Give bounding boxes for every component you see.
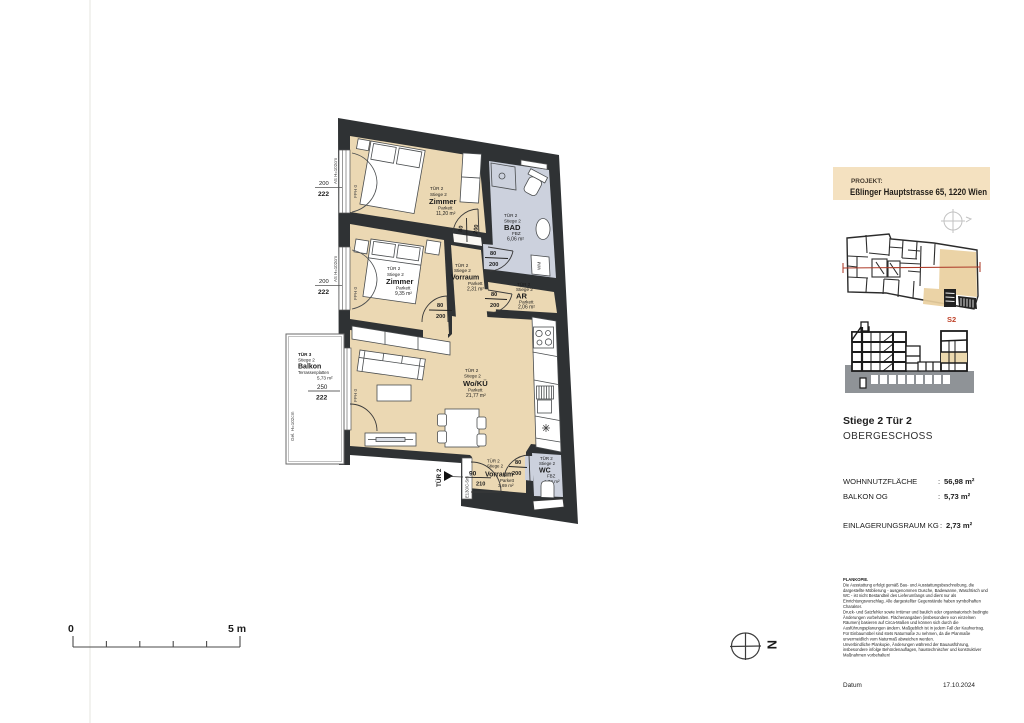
- svg-text:TÜR 2: TÜR 2: [430, 185, 444, 191]
- svg-text:200: 200: [319, 279, 329, 285]
- svg-text:BALKON OG: BALKON OG: [843, 492, 888, 501]
- svg-text:Parkett: Parkett: [438, 206, 453, 211]
- svg-text:11,20 m²: 11,20 m²: [436, 211, 456, 217]
- svg-text:56,98 m²: 56,98 m²: [944, 477, 975, 486]
- svg-text:FPH 0: FPH 0: [353, 287, 358, 300]
- svg-text:AS H=102cm: AS H=102cm: [333, 158, 338, 184]
- svg-text:2,73 m²: 2,73 m²: [946, 521, 973, 530]
- svg-text:Stiege 2: Stiege 2: [487, 464, 504, 469]
- svg-text:N: N: [765, 640, 780, 649]
- svg-text:222: 222: [318, 289, 329, 296]
- svg-text:5 m: 5 m: [228, 623, 246, 635]
- svg-text:AS H=102cm: AS H=102cm: [333, 256, 338, 282]
- svg-text:200: 200: [473, 224, 480, 234]
- svg-text:dargestellte Möblierung - ausg: dargestellte Möblierung - ausgenommen Du…: [843, 588, 989, 593]
- svg-text:WM: WM: [537, 262, 542, 270]
- svg-text:200: 200: [490, 303, 499, 309]
- svg-text:17.10.2024: 17.10.2024: [943, 682, 975, 689]
- svg-text:FPH 0: FPH 0: [353, 185, 358, 198]
- svg-text:S2: S2: [947, 315, 956, 324]
- svg-text:WOHNNUTZFLÄCHE: WOHNNUTZFLÄCHE: [843, 477, 917, 486]
- svg-text:0: 0: [68, 623, 74, 635]
- svg-text:200: 200: [489, 262, 498, 268]
- svg-text:Parkett: Parkett: [468, 281, 483, 286]
- svg-text:Parkett: Parkett: [468, 388, 483, 393]
- svg-text:210: 210: [476, 482, 485, 488]
- svg-text:PLANKOPIE.: PLANKOPIE.: [843, 577, 868, 582]
- svg-text:80: 80: [515, 460, 521, 466]
- svg-text:Charakter.: Charakter.: [843, 604, 862, 609]
- svg-text:EINLAGERUNGSRAUM KG: EINLAGERUNGSRAUM KG: [843, 521, 939, 530]
- svg-text:80: 80: [437, 303, 443, 309]
- svg-text:250: 250: [317, 384, 328, 391]
- svg-text:TÜR 3: TÜR 3: [298, 351, 312, 357]
- svg-text:80: 80: [490, 251, 496, 257]
- svg-text:Stiege 2 Tür 2: Stiege 2 Tür 2: [843, 415, 912, 427]
- svg-text::: :: [938, 477, 940, 486]
- svg-text:Für Einbaumöbel sind stets Nat: Für Einbaumöbel sind stets Naturmaße zu …: [843, 631, 971, 636]
- svg-text:200: 200: [319, 181, 329, 187]
- svg-text:Gel. H=102cm: Gel. H=102cm: [290, 411, 295, 441]
- svg-text:200: 200: [436, 314, 445, 320]
- svg-text:TÜR 2: TÜR 2: [465, 367, 479, 373]
- svg-text:Einrichtungsvorschlag. Alle da: Einrichtungsvorschlag. Alle dargestellte…: [843, 599, 982, 604]
- svg-text:Druck- und Satzfehler sowie Ir: Druck- und Satzfehler sowie Irrtümer und…: [843, 609, 989, 614]
- svg-text:WC - ist nicht Bestandteil des: WC - ist nicht Bestandteil des Lieferumf…: [843, 593, 956, 598]
- svg-text:TÜR 2: TÜR 2: [504, 212, 518, 218]
- svg-text:Stiege 2: Stiege 2: [454, 268, 471, 273]
- svg-text:21,77 m²: 21,77 m²: [466, 393, 486, 399]
- svg-text::: :: [940, 521, 942, 530]
- svg-text:222: 222: [318, 191, 329, 198]
- svg-text:5,73 m²: 5,73 m²: [944, 492, 971, 501]
- svg-text:Terrassenplatten: Terrassenplatten: [298, 370, 330, 375]
- svg-text:2,06 m²: 2,06 m²: [518, 305, 535, 311]
- svg-text:Räumen) basieren auf Circa-Maß: Räumen) basieren auf Circa-Maßen und kön…: [843, 620, 959, 625]
- svg-text:Stiege 2: Stiege 2: [539, 461, 556, 466]
- svg-text:2,31 m²: 2,31 m²: [467, 287, 484, 293]
- svg-text:PROJEKT:: PROJEKT:: [851, 178, 883, 185]
- svg-text:200: 200: [512, 471, 521, 477]
- svg-text:FBZ: FBZ: [547, 474, 556, 479]
- svg-text:Maßnahmen vorbehalten!: Maßnahmen vorbehalten!: [843, 653, 890, 658]
- svg-text::: :: [938, 492, 940, 501]
- svg-text:Änderungen vorbehalten. Fläche: Änderungen vorbehalten. Flächenangaben (…: [843, 615, 976, 620]
- svg-text:FBZ: FBZ: [512, 231, 521, 236]
- svg-text:80: 80: [491, 292, 497, 298]
- svg-text:insbesondere infolge Behördena: insbesondere infolge Behördenauflagen, h…: [843, 647, 982, 652]
- svg-text:Parkett: Parkett: [396, 286, 411, 291]
- svg-text:6,06 m²: 6,06 m²: [507, 237, 524, 243]
- svg-text:90: 90: [469, 471, 477, 478]
- svg-text:Die Ausstattung erfolgt gemäß: Die Ausstattung erfolgt gemäß Bau- und A…: [843, 582, 975, 587]
- svg-text:222: 222: [316, 395, 328, 402]
- svg-text:TÜR 2: TÜR 2: [434, 468, 443, 487]
- svg-text:Unverbindliche Plankopie, Ände: Unverbindliche Plankopie, Änderungen wäh…: [843, 642, 969, 647]
- svg-text:unvermeidlich vom Naturmaß abw: unvermeidlich vom Naturmaß abweichen wer…: [843, 636, 934, 641]
- svg-text:9,35 m²: 9,35 m²: [395, 291, 412, 297]
- svg-text:Stiege 2: Stiege 2: [464, 374, 481, 379]
- svg-text:Stiege 2: Stiege 2: [298, 358, 315, 363]
- svg-text:3,69 m²: 3,69 m²: [498, 483, 514, 488]
- svg-text:FPH 0: FPH 0: [353, 389, 358, 402]
- svg-text:OBERGESCHOSS: OBERGESCHOSS: [843, 431, 933, 442]
- svg-text:E130/C-Sm: E130/C-Sm: [465, 476, 470, 498]
- svg-text:TÜR 2: TÜR 2: [387, 265, 401, 271]
- svg-text:5,73 m²: 5,73 m²: [317, 376, 333, 381]
- svg-text:80: 80: [458, 225, 465, 232]
- svg-text:Eßlinger Hauptstrasse 65, 1220: Eßlinger Hauptstrasse 65, 1220 Wien: [850, 187, 987, 197]
- svg-text:Ausführungsplanungen ändern. M: Ausführungsplanungen ändern. Maßgeblich …: [843, 626, 984, 631]
- svg-text:Datum: Datum: [843, 682, 862, 689]
